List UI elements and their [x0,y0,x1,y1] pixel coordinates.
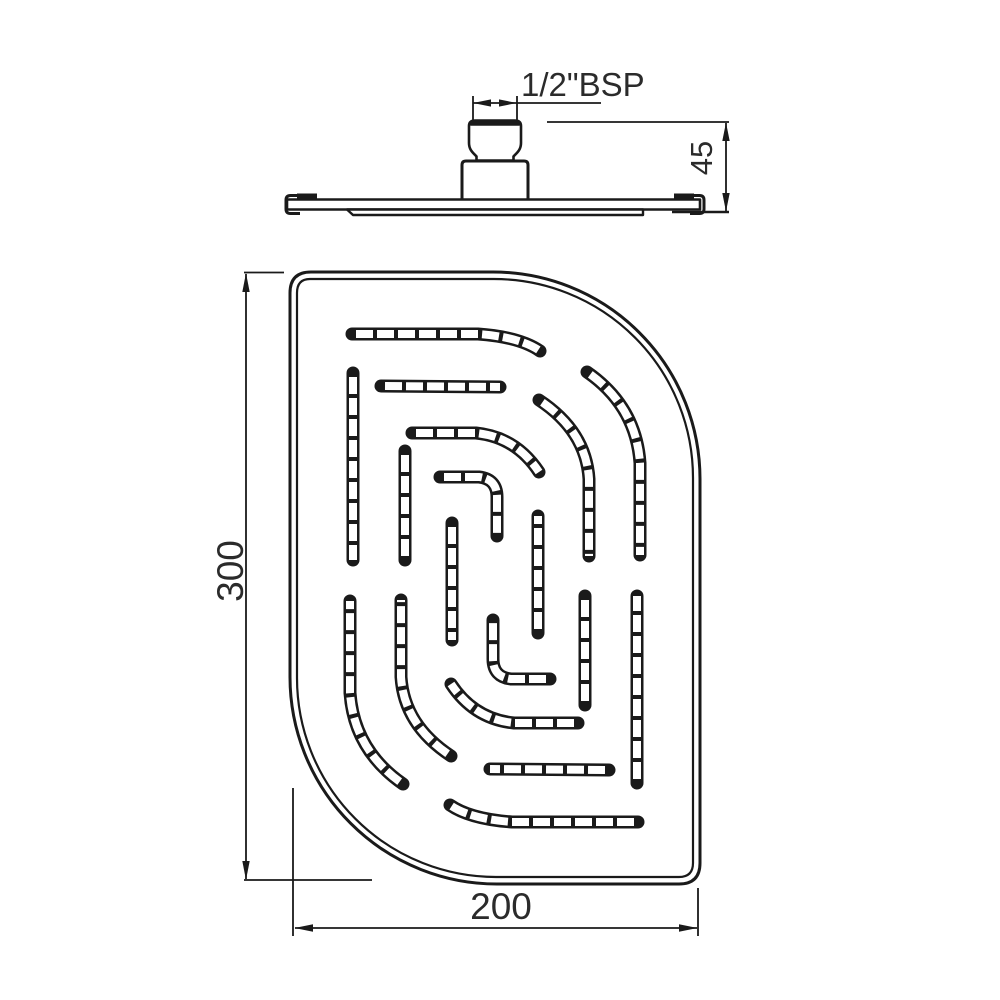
dim-length-label: 300 [210,540,251,602]
faceplate-outline-outer [290,272,700,884]
dim-width-arrowhead-2 [679,924,698,931]
technical-drawing-page: 1/2"BSP45300200 [0,0,1000,1000]
dim-height-arrowhead-1 [722,123,729,142]
dim-thread-size-arrowhead-1 [473,99,491,106]
face-view-plate [290,272,700,884]
dim-height-arrowhead-2 [722,193,729,212]
dim-width-arrowhead-1 [295,924,314,931]
shower-head-dimensional-drawing: 1/2"BSP45300200 [0,0,1000,1000]
inlet-base-block [462,161,528,200]
plate-face-lip [347,210,643,216]
dim-length-arrowhead-1 [242,273,249,292]
dim-thread-size-label: 1/2"BSP [521,66,645,103]
dim-length-arrowhead-2 [242,861,249,880]
dim-height-label: 45 [684,141,719,175]
dim-thread-size-arrowhead-2 [499,99,517,106]
side-view-profile [286,121,704,216]
spray-slot-core-12 [490,769,609,770]
dim-width-label: 200 [470,886,532,927]
spray-slot-core-3 [381,386,500,387]
plate-profile [287,200,700,210]
inlet-nipple [469,121,521,161]
